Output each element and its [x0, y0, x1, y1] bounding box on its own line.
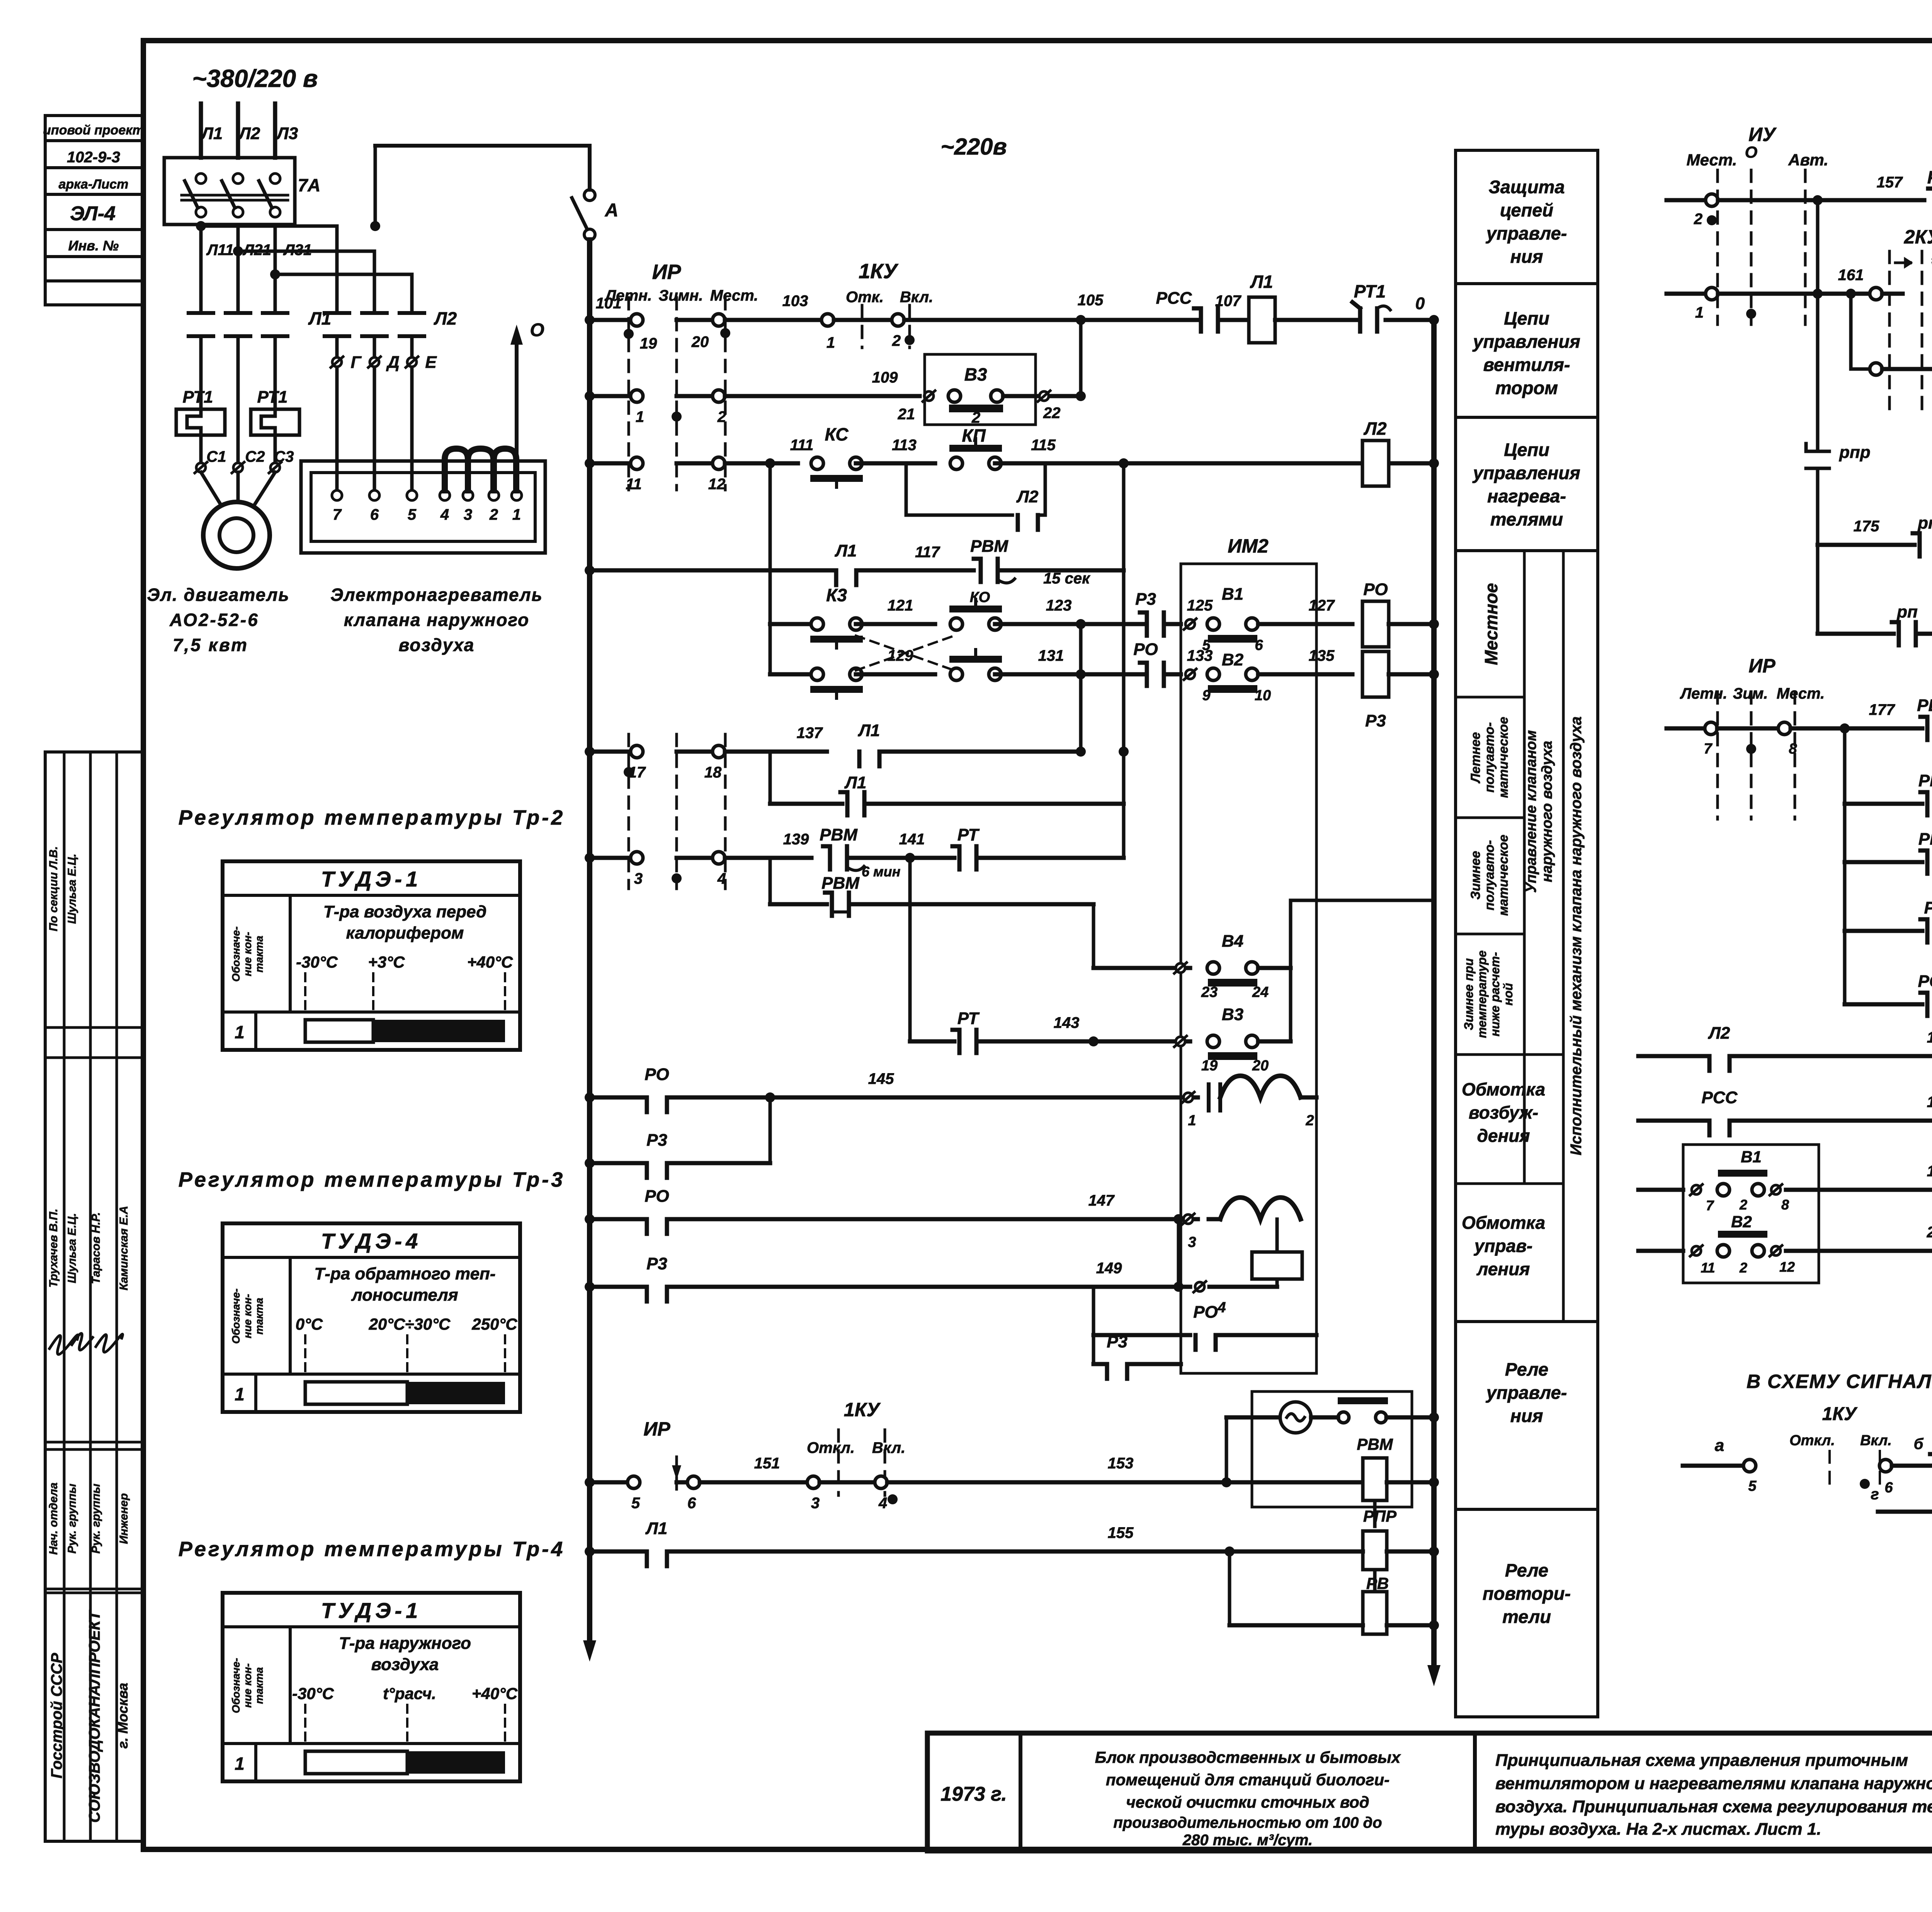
svg-text:+40°C: +40°C	[472, 1684, 518, 1703]
svg-text:тели: тели	[1502, 1606, 1551, 1627]
svg-text:ние кон-: ние кон-	[241, 1294, 253, 1339]
svg-text:143: 143	[1054, 1014, 1080, 1031]
svg-text:8: 8	[1781, 1197, 1789, 1213]
svg-text:такта: такта	[253, 1667, 265, 1704]
svg-text:101: 101	[596, 295, 622, 312]
svg-text:РО: РО	[645, 1187, 669, 1206]
svg-text:матическое: матическое	[1496, 835, 1511, 916]
svg-text:О: О	[530, 320, 544, 340]
svg-text:КС: КС	[825, 424, 849, 444]
svg-text:21: 21	[898, 406, 915, 423]
svg-text:Откл.: Откл.	[1789, 1432, 1835, 1449]
svg-text:10: 10	[1255, 687, 1271, 704]
svg-text:О: О	[1745, 143, 1758, 161]
svg-text:1КУ: 1КУ	[859, 260, 898, 283]
svg-text:139: 139	[783, 831, 809, 848]
svg-text:125: 125	[1187, 597, 1213, 614]
svg-text:Эл. двигатель: Эл. двигатель	[147, 585, 289, 605]
svg-text:арка-Лист: арка-Лист	[59, 177, 129, 192]
svg-text:20: 20	[1252, 1058, 1269, 1074]
svg-text:В2: В2	[1731, 1213, 1752, 1231]
svg-text:Л1: Л1	[201, 124, 223, 143]
svg-text:СОЮЗВОДОКАНАЛПРОЕКТ: СОЮЗВОДОКАНАЛПРОЕКТ	[86, 1610, 103, 1823]
svg-text:147: 147	[1088, 1192, 1115, 1209]
svg-text:199: 199	[1927, 1163, 1932, 1180]
svg-text:Т-ра обратного теп-: Т-ра обратного теп-	[314, 1264, 495, 1283]
svg-text:149: 149	[1096, 1260, 1122, 1277]
svg-text:2: 2	[1694, 211, 1702, 228]
svg-text:3: 3	[634, 870, 643, 887]
svg-text:5: 5	[631, 1495, 640, 1512]
svg-text:12: 12	[1779, 1259, 1795, 1275]
svg-text:РВМ: РВМ	[1357, 1435, 1393, 1453]
svg-text:Зимн.: Зимн.	[659, 287, 703, 304]
svg-text:вентиля-: вентиля-	[1483, 354, 1570, 375]
svg-text:управле-: управле-	[1486, 1382, 1567, 1403]
svg-text:2: 2	[892, 332, 901, 349]
svg-text:полуавто-: полуавто-	[1482, 722, 1497, 793]
svg-text:t°расч.: t°расч.	[383, 1684, 436, 1703]
svg-text:8: 8	[1789, 741, 1797, 757]
svg-text:7: 7	[1704, 741, 1713, 757]
svg-text:Л1: Л1	[308, 308, 331, 328]
svg-text:б: б	[1914, 1436, 1924, 1453]
svg-text:ИУ: ИУ	[1748, 124, 1777, 145]
svg-text:цепей: цепей	[1500, 200, 1553, 220]
svg-text:133: 133	[1187, 647, 1213, 664]
svg-text:такта: такта	[253, 936, 265, 972]
svg-text:Л2: Л2	[434, 308, 457, 328]
svg-text:Тарасов Н.Р.: Тарасов Н.Р.	[90, 1212, 102, 1284]
svg-text:лоносителя: лоносителя	[351, 1286, 458, 1305]
svg-text:А: А	[605, 200, 619, 221]
svg-text:7: 7	[1706, 1198, 1714, 1213]
svg-text:Обозначе-: Обозначе-	[230, 1658, 242, 1713]
svg-text:РТ1: РТ1	[257, 388, 287, 407]
svg-text:131: 131	[1038, 647, 1064, 664]
svg-text:ческой очистки сточных вод: ческой очистки сточных вод	[1126, 1793, 1369, 1811]
svg-text:2: 2	[1739, 1197, 1747, 1213]
svg-text:РПР: РПР	[1927, 167, 1932, 187]
svg-text:воздуха. Принципиальная схема: воздуха. Принципиальная схема регулирова…	[1495, 1797, 1932, 1816]
svg-text:11: 11	[1701, 1260, 1715, 1276]
svg-text:В2: В2	[1222, 650, 1244, 669]
svg-text:Рук. группы: Рук. группы	[90, 1483, 102, 1553]
svg-text:19: 19	[1201, 1058, 1218, 1074]
svg-text:Р3: Р3	[1365, 711, 1386, 730]
svg-text:-30°C: -30°C	[296, 953, 338, 971]
svg-text:6: 6	[370, 506, 379, 523]
svg-text:ИР: ИР	[643, 1418, 670, 1440]
svg-text:Л2: Л2	[238, 124, 260, 143]
svg-text:Исполнительный механизм клап: Исполнительный механизм клапана наружног…	[1568, 716, 1585, 1155]
svg-text:19: 19	[640, 335, 657, 352]
svg-text:Защита: Защита	[1489, 177, 1565, 197]
svg-text:полуавто-: полуавто-	[1482, 840, 1497, 910]
svg-text:Принципиальная схема управле: Принципиальная схема управления приточны…	[1495, 1751, 1908, 1770]
svg-text:Реле: Реле	[1505, 1359, 1548, 1380]
svg-text:Шульга Е.Ц.: Шульга Е.Ц.	[66, 1213, 78, 1283]
svg-text:Л1: Л1	[835, 541, 857, 560]
svg-text:Л1: Л1	[645, 1519, 668, 1538]
svg-text:В1: В1	[1222, 585, 1243, 604]
svg-text:С2: С2	[245, 448, 265, 465]
svg-text:1: 1	[235, 1022, 245, 1042]
svg-text:РВМ: РВМ	[821, 874, 860, 893]
svg-text:РО: РО	[1193, 1303, 1218, 1322]
svg-text:Рук. группы: Рук. группы	[66, 1483, 78, 1553]
svg-text:1: 1	[235, 1384, 245, 1404]
svg-text:135: 135	[1309, 647, 1335, 664]
svg-text:Д: Д	[386, 353, 400, 372]
svg-text:7А: 7А	[298, 175, 321, 195]
svg-text:ИМ2: ИМ2	[1228, 535, 1269, 557]
svg-text:ния: ния	[1510, 1405, 1543, 1426]
svg-text:4: 4	[440, 506, 449, 523]
svg-text:6 мин: 6 мин	[862, 864, 901, 879]
svg-text:Р3: Р3	[646, 1131, 667, 1150]
svg-text:ТУДЭ-1: ТУДЭ-1	[321, 867, 422, 891]
svg-text:вентилятором и нагревателями к: вентилятором и нагревателями клапана нар…	[1495, 1774, 1932, 1793]
svg-text:такта: такта	[253, 1298, 265, 1334]
svg-text:Откл.: Откл.	[807, 1439, 855, 1456]
svg-text:С1: С1	[206, 448, 226, 465]
svg-text:Обозначе-: Обозначе-	[230, 926, 242, 982]
svg-text:103: 103	[782, 293, 808, 310]
svg-text:4: 4	[878, 1495, 887, 1512]
svg-text:197: 197	[1927, 1094, 1932, 1111]
svg-text:1КУ: 1КУ	[1822, 1404, 1858, 1424]
svg-text:Регулятор температуры Тр-4: Регулятор температуры Тр-4	[179, 1538, 565, 1561]
svg-text:7,5 квт: 7,5 квт	[173, 635, 248, 655]
svg-text:нагрева-: нагрева-	[1487, 486, 1566, 506]
svg-text:161: 161	[1838, 267, 1864, 284]
svg-text:По секции Л.В.: По секции Л.В.	[47, 846, 60, 931]
svg-text:5: 5	[408, 506, 417, 523]
svg-text:23: 23	[1201, 984, 1218, 1000]
svg-text:РВ: РВ	[1366, 1574, 1389, 1592]
svg-text:Л2: Л2	[1363, 418, 1387, 439]
svg-text:ЭЛ-4: ЭЛ-4	[70, 202, 116, 225]
svg-text:телями: телями	[1490, 509, 1563, 529]
svg-text:137: 137	[797, 725, 823, 742]
svg-text:РСС: РСС	[1918, 972, 1932, 991]
svg-text:2: 2	[1739, 1260, 1747, 1276]
svg-text:ние кон-: ние кон-	[241, 932, 253, 976]
svg-text:175: 175	[1854, 518, 1879, 535]
svg-text:Отк.: Отк.	[846, 289, 884, 306]
svg-text:1: 1	[1695, 304, 1704, 321]
svg-text:105: 105	[1078, 292, 1104, 309]
svg-text:Регулятор температуры Тр-2: Регулятор температуры Тр-2	[179, 806, 565, 829]
svg-text:матическое: матическое	[1496, 717, 1511, 798]
svg-text:Л3: Л3	[276, 124, 298, 143]
svg-text:Нач. отдела: Нач. отдела	[47, 1483, 60, 1555]
svg-text:151: 151	[754, 1455, 780, 1472]
svg-text:воздуха: воздуха	[371, 1655, 439, 1674]
svg-text:Л1: Л1	[858, 721, 880, 740]
svg-text:2КУ: 2КУ	[1904, 226, 1932, 248]
svg-text:управле-: управле-	[1486, 223, 1567, 243]
svg-text:6: 6	[1884, 1480, 1893, 1496]
svg-text:ние кон-: ние кон-	[241, 1664, 253, 1708]
svg-text:Шульга Е.Ц.: Шульга Е.Ц.	[66, 854, 78, 924]
svg-text:155: 155	[1108, 1524, 1134, 1541]
svg-text:Местное: Местное	[1481, 583, 1501, 665]
svg-text:Электронагреватель: Электронагреватель	[330, 585, 543, 605]
svg-text:Обозначе-: Обозначе-	[230, 1288, 242, 1344]
svg-text:Л1: Л1	[1250, 272, 1273, 292]
svg-text:Л1: Л1	[844, 773, 867, 792]
svg-text:Г: Г	[350, 353, 362, 372]
svg-text:Л2: Л2	[1016, 487, 1039, 506]
svg-text:4: 4	[1217, 1300, 1226, 1316]
svg-text:туры воздуха. На 2-х листах.: туры воздуха. На 2-х листах. Лист 1.	[1495, 1820, 1821, 1839]
svg-text:Зим.: Зим.	[1733, 685, 1768, 702]
svg-text:дения: дения	[1477, 1126, 1530, 1146]
svg-text:Цепи: Цепи	[1504, 308, 1549, 328]
svg-text:Зимнее при: Зимнее при	[1462, 958, 1476, 1030]
svg-text:РВМ: РВМ	[970, 537, 1009, 556]
svg-text:201: 201	[1927, 1224, 1932, 1241]
svg-text:20: 20	[691, 333, 709, 350]
svg-text:+3°C: +3°C	[368, 953, 405, 971]
svg-text:11: 11	[626, 476, 642, 493]
svg-text:РВМ: РВМ	[1917, 696, 1932, 715]
svg-text:РПР: РПР	[1918, 830, 1932, 849]
svg-text:24: 24	[1252, 984, 1269, 1000]
svg-text:153: 153	[1108, 1455, 1134, 1472]
svg-text:~380/220 в: ~380/220 в	[192, 65, 318, 92]
svg-text:1: 1	[1188, 1112, 1196, 1129]
svg-text:127: 127	[1309, 597, 1335, 614]
svg-text:Вкл.: Вкл.	[1860, 1432, 1892, 1449]
svg-text:Мест.: Мест.	[710, 287, 758, 304]
svg-text:102-9-3: 102-9-3	[67, 149, 120, 166]
svg-text:Вкл.: Вкл.	[900, 289, 933, 306]
svg-text:РСС: РСС	[1702, 1088, 1738, 1107]
svg-text:Цепи: Цепи	[1504, 439, 1549, 460]
svg-text:а: а	[1715, 1436, 1724, 1455]
svg-text:3: 3	[464, 506, 472, 523]
svg-text:107: 107	[1215, 293, 1242, 310]
svg-text:В3: В3	[1222, 1005, 1243, 1024]
svg-text:ИР: ИР	[1748, 655, 1776, 677]
svg-text:195: 195	[1927, 1029, 1932, 1046]
svg-text:РО: РО	[645, 1065, 669, 1084]
svg-text:Инженер: Инженер	[117, 1493, 130, 1544]
svg-text:0°C: 0°C	[296, 1315, 323, 1333]
svg-text:управления: управления	[1472, 331, 1580, 352]
svg-text:Мест.: Мест.	[1777, 685, 1825, 702]
svg-text:121: 121	[888, 597, 913, 614]
svg-text:ниже расчет-: ниже расчет-	[1488, 952, 1502, 1037]
svg-text:Летнее: Летнее	[1468, 732, 1483, 784]
svg-text:1: 1	[235, 1754, 245, 1774]
svg-text:КП: КП	[962, 425, 986, 446]
svg-text:ной: ной	[1501, 983, 1515, 1005]
svg-text:Управление клапаном: Управление клапаном	[1523, 730, 1539, 893]
svg-text:280 тыс. м³/сут.: 280 тыс. м³/сут.	[1182, 1832, 1313, 1849]
svg-text:6: 6	[1255, 637, 1263, 653]
svg-text:Трухачев В.П.: Трухачев В.П.	[47, 1209, 60, 1288]
svg-text:воздуха: воздуха	[399, 635, 475, 655]
svg-text:Е: Е	[425, 353, 437, 372]
svg-text:В3: В3	[964, 364, 987, 384]
svg-text:115: 115	[1031, 437, 1056, 454]
svg-text:9: 9	[1202, 687, 1210, 704]
svg-text:6: 6	[687, 1495, 696, 1512]
svg-text:2: 2	[1305, 1112, 1314, 1129]
svg-text:иповой проект: иповой проект	[43, 123, 144, 138]
svg-text:Л2: Л2	[1708, 1024, 1730, 1043]
svg-text:Блок производственных и бытовы: Блок производственных и бытовых	[1095, 1748, 1401, 1766]
svg-text:РВ: РВ	[1924, 898, 1932, 917]
svg-text:г. Москва: г. Москва	[115, 1683, 131, 1749]
svg-text:КО: КО	[970, 589, 990, 606]
svg-text:3: 3	[811, 1495, 820, 1512]
svg-text:Вкл.: Вкл.	[872, 1439, 905, 1456]
svg-text:7: 7	[333, 506, 342, 523]
svg-text:1КУ: 1КУ	[844, 1399, 881, 1420]
svg-text:наружного воздуха: наружного воздуха	[1539, 741, 1555, 882]
svg-text:123: 123	[1046, 597, 1072, 614]
svg-text:0: 0	[1415, 294, 1425, 313]
svg-text:157: 157	[1877, 174, 1903, 191]
svg-text:рп: рп	[1896, 602, 1918, 621]
svg-text:15 сек: 15 сек	[1043, 570, 1090, 587]
svg-text:109: 109	[872, 369, 898, 386]
svg-text:Зимнее: Зимнее	[1468, 851, 1483, 900]
svg-text:Инв. №: Инв. №	[68, 238, 119, 253]
svg-text:18: 18	[704, 764, 722, 781]
svg-text:250°C: 250°C	[471, 1315, 517, 1333]
svg-text:-30°C: -30°C	[292, 1684, 334, 1703]
svg-text:РО: РО	[1363, 580, 1388, 599]
svg-text:5: 5	[1748, 1478, 1757, 1494]
svg-text:РТ1: РТ1	[1354, 281, 1386, 301]
svg-text:управления: управления	[1472, 463, 1580, 483]
svg-text:помещений для станций биологи-: помещений для станций биологи-	[1106, 1771, 1389, 1789]
svg-text:4: 4	[717, 870, 726, 887]
svg-text:20°C÷30°C: 20°C÷30°C	[369, 1315, 451, 1333]
svg-text:возбуж-: возбуж-	[1469, 1102, 1538, 1123]
svg-text:2: 2	[717, 408, 726, 425]
svg-text:тором: тором	[1495, 378, 1558, 398]
svg-text:Обмотка: Обмотка	[1462, 1213, 1545, 1233]
svg-text:повтори-: повтори-	[1483, 1583, 1571, 1604]
svg-text:В1: В1	[1741, 1148, 1762, 1166]
svg-text:температуре: температуре	[1475, 951, 1489, 1038]
svg-text:Реле: Реле	[1505, 1560, 1548, 1580]
svg-text:1: 1	[827, 334, 835, 351]
svg-text:РПР: РПР	[1918, 771, 1932, 790]
svg-text:2: 2	[489, 506, 498, 523]
svg-text:производительностью от 100 до: производительностью от 100 до	[1113, 1814, 1382, 1831]
svg-text:+40°C: +40°C	[467, 953, 513, 971]
svg-text:3: 3	[1188, 1234, 1196, 1250]
svg-text:Летн.: Летн.	[1680, 685, 1728, 702]
svg-text:~220в: ~220в	[940, 134, 1007, 160]
svg-text:145: 145	[868, 1070, 894, 1087]
svg-text:управ-: управ-	[1474, 1236, 1532, 1256]
svg-text:Авт.: Авт.	[1788, 151, 1828, 169]
svg-text:РСС: РСС	[1156, 289, 1192, 308]
svg-text:В4: В4	[1222, 932, 1243, 951]
svg-text:В СХЕМУ СИГНАЛИЗАЦИИ: В СХЕМУ СИГНАЛИЗАЦИИ	[1747, 1371, 1932, 1392]
svg-text:2: 2	[971, 409, 980, 426]
svg-text:Т-ра наружного: Т-ра наружного	[339, 1634, 471, 1653]
svg-text:РВМ: РВМ	[820, 825, 858, 844]
svg-text:Госстрой СССР: Госстрой СССР	[48, 1653, 65, 1778]
svg-text:рп: рп	[1917, 514, 1932, 532]
svg-text:ния: ния	[1510, 246, 1543, 267]
svg-text:Р3: Р3	[1107, 1332, 1128, 1351]
svg-text:РПР: РПР	[1363, 1507, 1397, 1525]
svg-text:117: 117	[915, 544, 940, 561]
svg-text:Р3: Р3	[1135, 590, 1156, 609]
svg-text:рпр: рпр	[1839, 443, 1871, 462]
svg-text:Регулятор температуры Тр-3: Регулятор температуры Тр-3	[179, 1168, 565, 1191]
svg-text:Р3: Р3	[646, 1254, 667, 1273]
svg-text:РТ: РТ	[957, 825, 980, 844]
svg-text:111: 111	[790, 437, 814, 454]
svg-text:РО: РО	[1133, 640, 1158, 659]
svg-text:1: 1	[512, 506, 521, 523]
svg-text:калорифером: калорифером	[346, 924, 464, 942]
svg-text:клапана наружного: клапана наружного	[344, 610, 529, 630]
svg-text:ТУДЭ-1: ТУДЭ-1	[321, 1598, 422, 1623]
svg-text:ТУДЭ-4: ТУДЭ-4	[321, 1229, 422, 1253]
svg-text:Каминская Е.А: Каминская Е.А	[117, 1206, 130, 1291]
svg-text:г: г	[1871, 1486, 1879, 1503]
svg-text:177: 177	[1869, 701, 1895, 718]
svg-text:Л11: Л11	[206, 242, 234, 259]
svg-text:113: 113	[892, 437, 917, 454]
svg-text:141: 141	[899, 831, 925, 848]
svg-text:22: 22	[1043, 405, 1061, 422]
svg-text:К3: К3	[826, 585, 847, 605]
svg-text:12: 12	[708, 476, 726, 493]
svg-text:1973 г.: 1973 г.	[940, 1783, 1007, 1805]
svg-text:Обмотка: Обмотка	[1462, 1079, 1545, 1099]
svg-text:ИР: ИР	[652, 260, 682, 284]
svg-text:1: 1	[636, 408, 644, 425]
svg-text:Мест.: Мест.	[1687, 151, 1737, 169]
svg-text:РТ1: РТ1	[182, 388, 213, 407]
svg-text:АО2-52-6: АО2-52-6	[169, 610, 259, 630]
svg-text:Т-ра воздуха перед: Т-ра воздуха перед	[323, 902, 487, 921]
svg-text:РТ: РТ	[957, 1009, 980, 1028]
svg-text:ления: ления	[1476, 1259, 1530, 1279]
